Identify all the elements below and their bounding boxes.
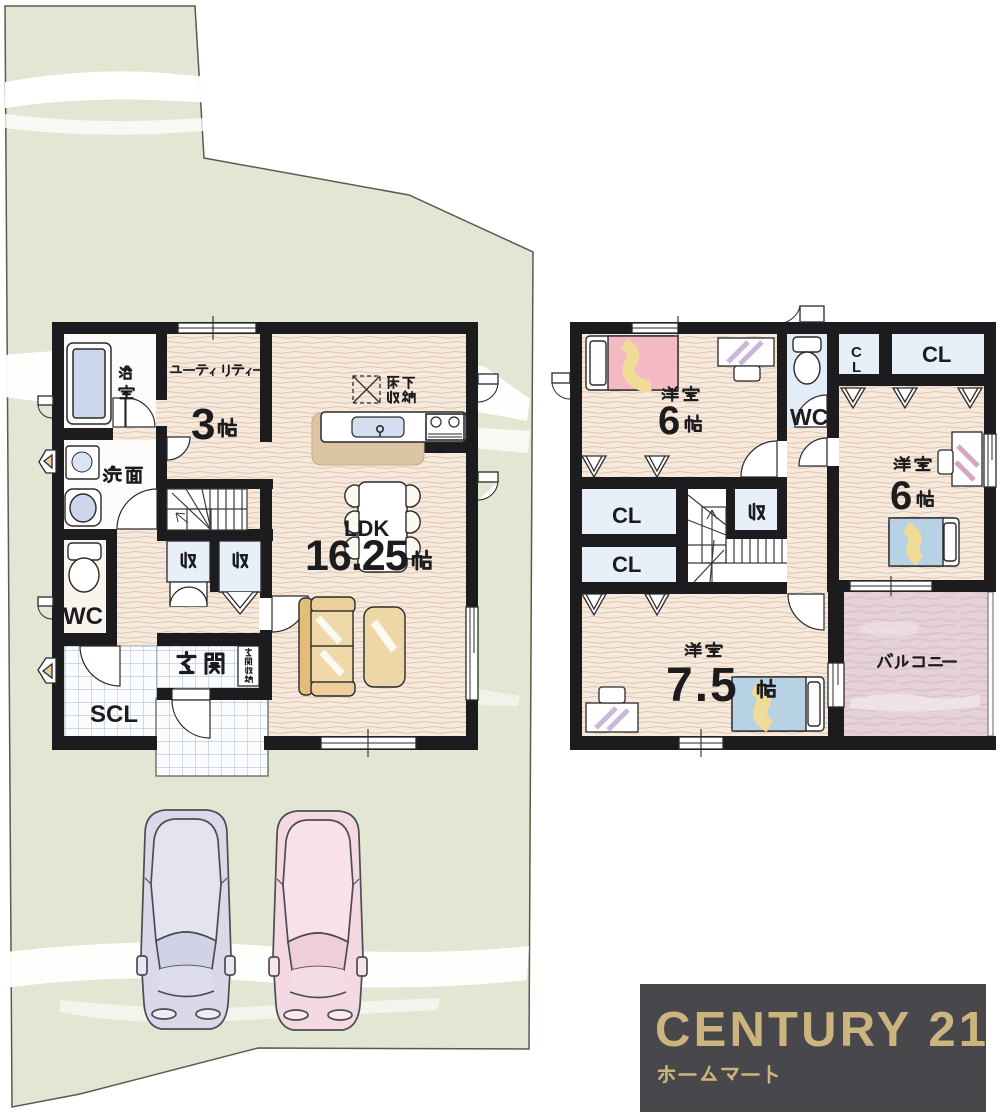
- svg-text:WC: WC: [790, 404, 828, 430]
- svg-text:CL: CL: [612, 552, 641, 577]
- svg-text:6: 6: [890, 474, 912, 518]
- svg-text:SCL: SCL: [90, 701, 138, 728]
- svg-text:7.5: 7.5: [666, 659, 739, 712]
- svg-text:CL: CL: [612, 503, 641, 528]
- svg-text:16.25: 16.25: [305, 532, 408, 580]
- svg-text:CENTURY 21: CENTURY 21: [655, 1003, 989, 1057]
- svg-text:CL: CL: [922, 342, 951, 367]
- svg-text:6: 6: [658, 399, 680, 443]
- svg-text:L: L: [852, 359, 861, 376]
- svg-text:WC: WC: [63, 603, 103, 630]
- svg-text:3: 3: [191, 400, 215, 449]
